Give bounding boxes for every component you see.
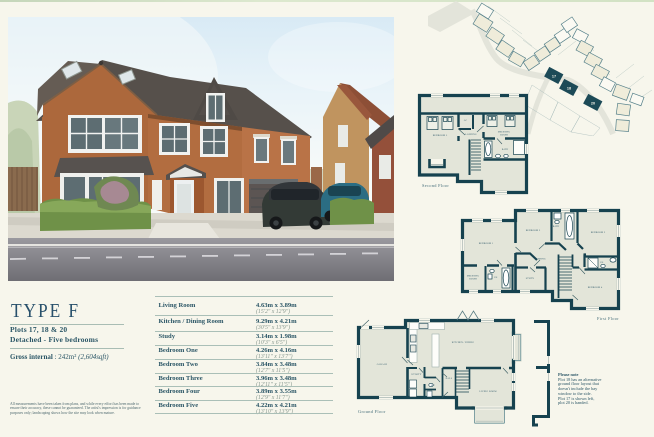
svg-text:17: 17 (552, 75, 556, 79)
svg-text:20: 20 (591, 102, 595, 106)
svg-text:BEDROOM 4: BEDROOM 4 (588, 287, 603, 289)
svg-text:STUDY: STUDY (526, 278, 535, 280)
svg-text:LANDING: LANDING (465, 133, 477, 136)
svg-text:BATH: BATH (553, 225, 560, 228)
svg-text:BEDROOM 1: BEDROOM 1 (479, 243, 494, 245)
svg-text:LIVING ROOM: LIVING ROOM (479, 391, 496, 393)
svg-text:KITCHEN / DINING: KITCHEN / DINING (452, 342, 475, 344)
svg-text:BATH: BATH (502, 148, 509, 151)
svg-text:GARAGE: GARAGE (377, 363, 388, 366)
svg-text:WC: WC (431, 385, 435, 387)
svg-text:ROOM: ROOM (500, 135, 508, 137)
svg-text:BEDROOM 2: BEDROOM 2 (591, 232, 606, 234)
svg-text:AC: AC (464, 119, 468, 122)
svg-text:BEDROOM 5: BEDROOM 5 (433, 135, 448, 137)
svg-text:18: 18 (567, 87, 571, 91)
svg-text:BEDROOM 3: BEDROOM 3 (526, 230, 541, 232)
svg-text:DRESSING: DRESSING (467, 276, 480, 278)
svg-text:DRESSING: DRESSING (498, 132, 511, 134)
svg-text:HALL: HALL (446, 377, 453, 380)
svg-text:UTILITY: UTILITY (411, 374, 421, 376)
svg-text:ROOM: ROOM (469, 279, 477, 281)
svg-text:LANDING: LANDING (534, 258, 546, 261)
